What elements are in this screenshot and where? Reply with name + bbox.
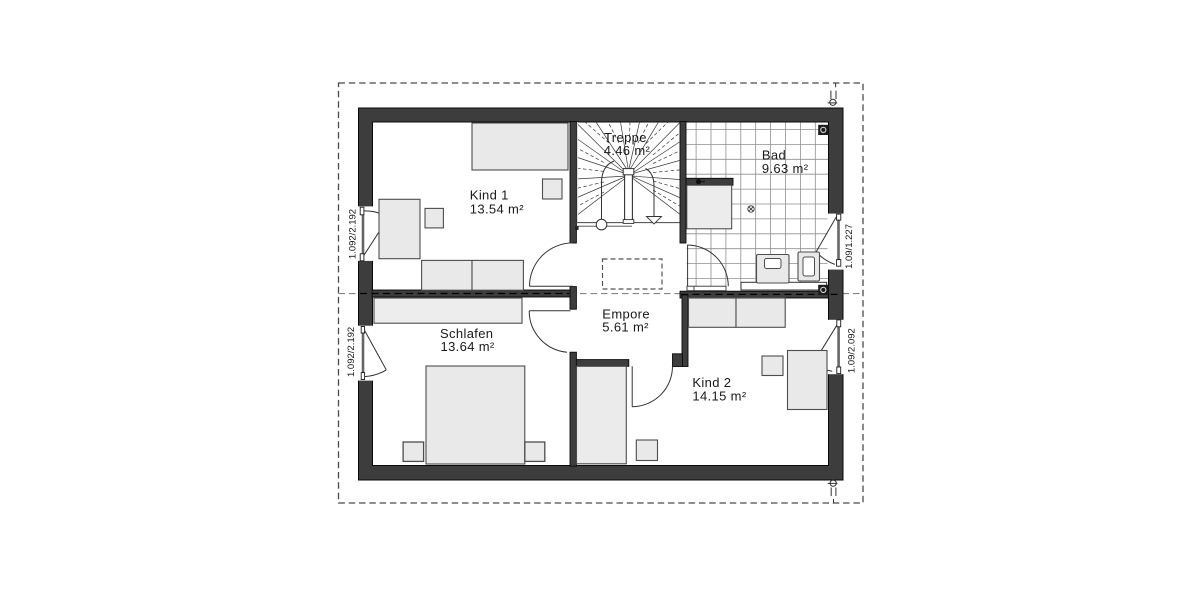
svg-text:1.092/2.192: 1.092/2.192	[348, 209, 359, 259]
svg-text:1.09/2.092: 1.09/2.092	[846, 328, 857, 373]
svg-text:13.64 m²: 13.64 m²	[441, 339, 495, 354]
svg-text:5.61 m²: 5.61 m²	[602, 320, 649, 335]
svg-text:1.09/1.227: 1.09/1.227	[844, 224, 855, 269]
svg-text:4.46 m²: 4.46 m²	[604, 143, 651, 158]
svg-text:14.15 m²: 14.15 m²	[692, 388, 746, 403]
svg-text:1.092/2.192: 1.092/2.192	[346, 327, 357, 377]
svg-text:13.54 m²: 13.54 m²	[470, 201, 524, 216]
svg-text:9.63 m²: 9.63 m²	[762, 161, 809, 176]
